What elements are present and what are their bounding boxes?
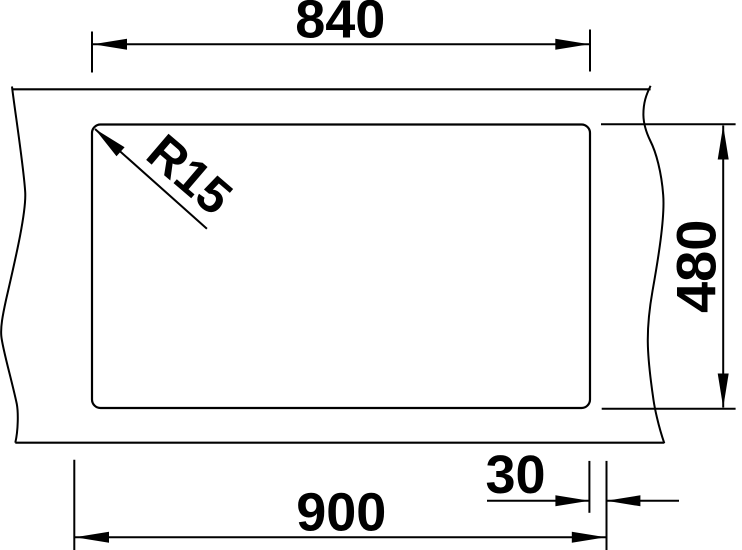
svg-text:840: 840 (295, 0, 385, 49)
svg-text:30: 30 (485, 445, 545, 505)
svg-text:R15: R15 (136, 123, 242, 225)
svg-text:900: 900 (296, 483, 386, 543)
svg-text:480: 480 (664, 220, 727, 313)
